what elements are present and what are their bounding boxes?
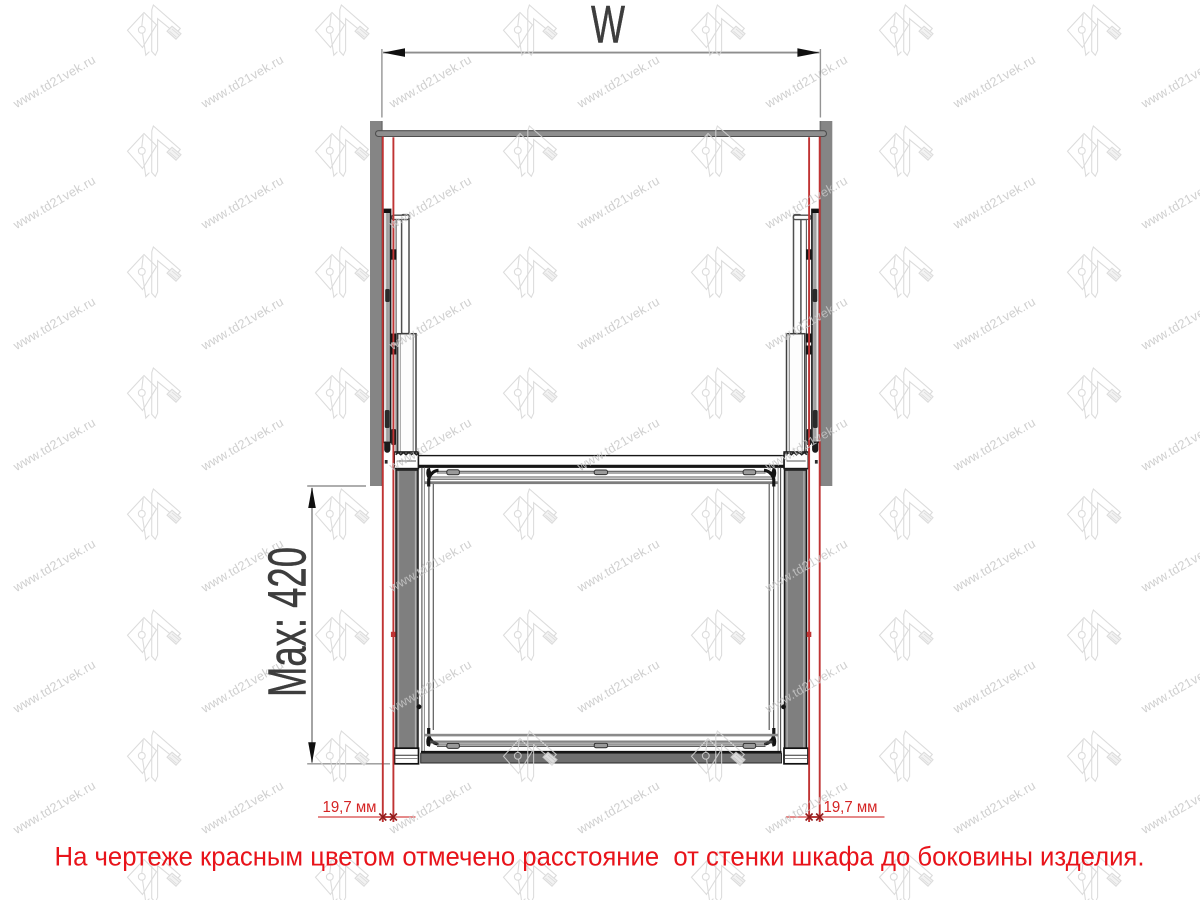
- svg-text:W: W: [591, 0, 625, 55]
- svg-text:19,7 мм: 19,7 мм: [824, 799, 878, 816]
- svg-text:Max: 420: Max: 420: [258, 547, 318, 697]
- svg-text:На чертеже красным цветом отме: На чертеже красным цветом отмечено расст…: [55, 842, 1145, 872]
- svg-text:19,7 мм: 19,7 мм: [323, 799, 377, 816]
